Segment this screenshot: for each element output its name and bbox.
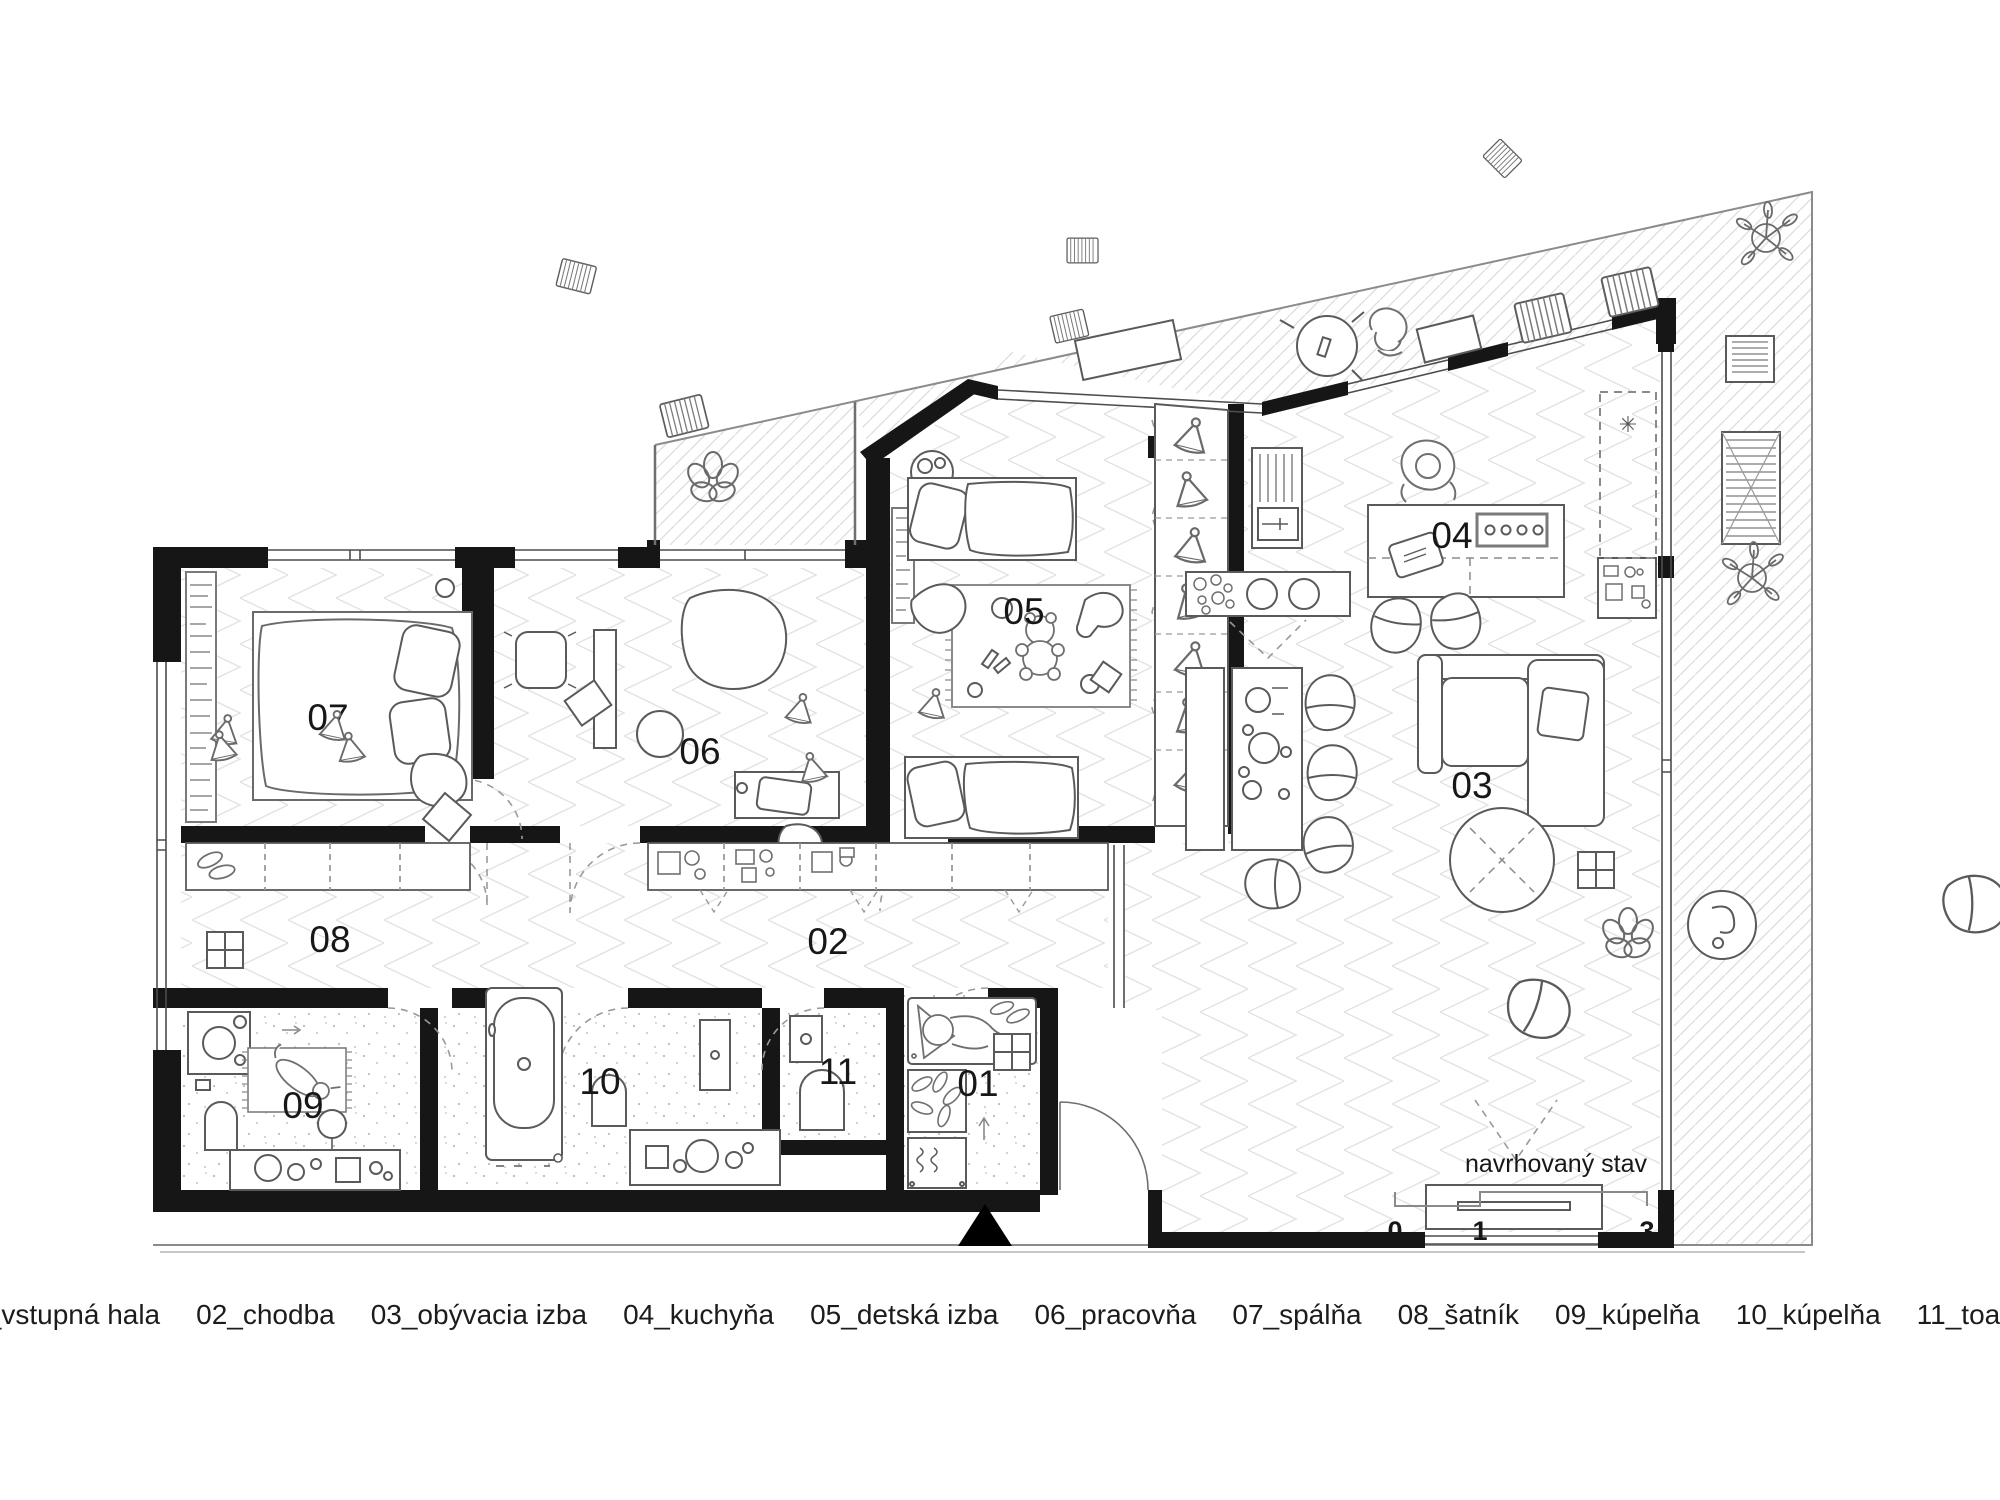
legend-item: 07_spálňa xyxy=(1232,1299,1361,1331)
room-label-10: 10 xyxy=(579,1061,620,1102)
room-label-11: 11 xyxy=(819,1051,857,1092)
legend-item: 08_šatník xyxy=(1398,1299,1519,1331)
box-icon xyxy=(207,932,243,968)
room-label-04: 04 xyxy=(1431,515,1472,556)
room-label-03: 03 xyxy=(1451,765,1492,806)
room-legend: 01_vstupná hala 02_chodba 03_obývacia iz… xyxy=(0,1299,2000,1331)
room-label-08: 08 xyxy=(309,919,350,960)
floor-plan-drawing: 07 06 05 xyxy=(0,0,2000,1500)
pouf-icon xyxy=(1688,891,1756,959)
legend-item: 09_kúpelňa xyxy=(1555,1299,1700,1331)
room-label-01: 01 xyxy=(957,1063,998,1104)
sun-lounger-icon xyxy=(1722,432,1780,544)
scale-tick-0: 0 xyxy=(1387,1216,1402,1246)
legend-item: 11_toaleta xyxy=(1917,1299,2000,1331)
scale-tick-3: 3 xyxy=(1639,1216,1654,1246)
room-label-09: 09 xyxy=(282,1085,323,1126)
room-label-05: 05 xyxy=(1003,591,1044,632)
legend-item: 05_detská izba xyxy=(810,1299,998,1331)
legend-item: 03_obývacia izba xyxy=(371,1299,587,1331)
legend-item: 06_pracovňa xyxy=(1034,1299,1196,1331)
annotation-text: navrhovaný stav xyxy=(1465,1150,1648,1178)
legend-item: 02_chodba xyxy=(196,1299,335,1331)
room-label-06: 06 xyxy=(679,731,720,772)
legend-item: 10_kúpelňa xyxy=(1736,1299,1881,1331)
room-label-02: 02 xyxy=(807,921,848,962)
wardrobe-marker: ✳ xyxy=(1619,412,1637,437)
scale-tick-1: 1 xyxy=(1472,1216,1487,1246)
terrace-chair-icon xyxy=(1726,336,1774,382)
legend-item: 04_kuchyňa xyxy=(623,1299,774,1331)
floor-plan-sheet: 07 06 05 xyxy=(0,0,2000,1500)
legend-item: 01_vstupná hala xyxy=(0,1299,160,1331)
